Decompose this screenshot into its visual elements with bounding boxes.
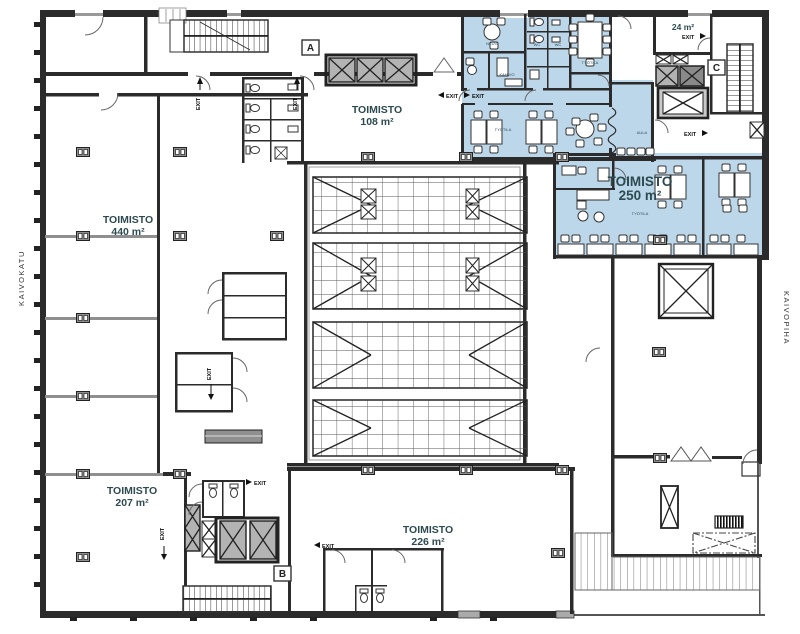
svg-text:EXIT: EXIT xyxy=(446,94,459,100)
street-kaivokatu: KAIVOKATU xyxy=(17,250,26,306)
office-207-name: TOIMISTO xyxy=(107,485,157,497)
core-b xyxy=(183,476,278,612)
exit-sign: EXIT xyxy=(207,367,214,400)
section-marker-c: C xyxy=(708,60,725,75)
exit-sign: EXIT xyxy=(246,479,267,487)
office-226-area: 226 m² xyxy=(411,536,445,548)
street-kaivopiha: KAIVOPIHA xyxy=(782,291,791,345)
office-207-area: 207 m² xyxy=(115,497,149,509)
stairs-top xyxy=(170,20,268,52)
svg-text:WC: WC xyxy=(534,42,541,47)
svg-text:B: B xyxy=(279,569,286,580)
svg-text:TYÖTILA: TYÖTILA xyxy=(495,127,512,132)
svg-text:TYÖTILA: TYÖTILA xyxy=(582,60,599,65)
office-108-name: TOIMISTO xyxy=(352,104,402,116)
office-250-name: TOIMISTO xyxy=(608,174,673,189)
floor-plan-drawing: EXIT EXIT EXIT EXIT EXIT EXIT EXIT EXIT … xyxy=(0,0,800,634)
skylight-band xyxy=(313,322,527,388)
svg-text:EXIT: EXIT xyxy=(196,97,202,110)
svg-text:EXIT: EXIT xyxy=(160,527,166,540)
svg-text:WC: WC xyxy=(555,42,562,47)
exit-sign: EXIT xyxy=(684,130,708,138)
atrium-skylights xyxy=(287,161,559,467)
svg-text:AULA: AULA xyxy=(637,130,648,135)
floor-plan-page: EXIT EXIT EXIT EXIT EXIT EXIT EXIT EXIT … xyxy=(0,0,800,634)
exit-sign: EXIT xyxy=(314,542,335,550)
skylight-band xyxy=(313,400,527,456)
exit-sign: EXIT xyxy=(682,33,706,41)
office-250-area: 250 m² xyxy=(619,188,662,203)
section-marker-a: A xyxy=(302,40,319,55)
office-108-area: 108 m² xyxy=(360,116,394,128)
svg-text:TYÖTILA: TYÖTILA xyxy=(632,211,649,216)
room-24-area: 24 m² xyxy=(672,22,694,32)
office-226-name: TOIMISTO xyxy=(403,524,453,536)
svg-text:EXIT: EXIT xyxy=(293,97,299,110)
svg-text:EXIT: EXIT xyxy=(684,132,697,138)
skylight-band xyxy=(313,177,527,233)
office-440-name: TOIMISTO xyxy=(103,214,153,226)
svg-text:EXIT: EXIT xyxy=(682,35,695,41)
section-marker-b: B xyxy=(274,566,291,581)
svg-text:EXIT: EXIT xyxy=(472,94,485,100)
svg-text:A: A xyxy=(307,43,314,54)
skylight-band xyxy=(313,243,527,309)
svg-text:NEUV.: NEUV. xyxy=(486,41,498,46)
core-c xyxy=(653,14,764,138)
svg-text:KAHVIO: KAHVIO xyxy=(499,72,514,77)
office-440-area: 440 m² xyxy=(111,226,145,238)
elevator-bank-top xyxy=(326,55,416,85)
svg-text:C: C xyxy=(713,63,720,74)
exit-sign: EXIT xyxy=(438,92,459,100)
svg-text:EXIT: EXIT xyxy=(207,367,213,380)
svg-text:EXIT: EXIT xyxy=(254,481,267,487)
exit-sign: EXIT xyxy=(160,527,167,560)
svg-text:EXIT: EXIT xyxy=(322,544,335,550)
right-block xyxy=(575,258,762,590)
